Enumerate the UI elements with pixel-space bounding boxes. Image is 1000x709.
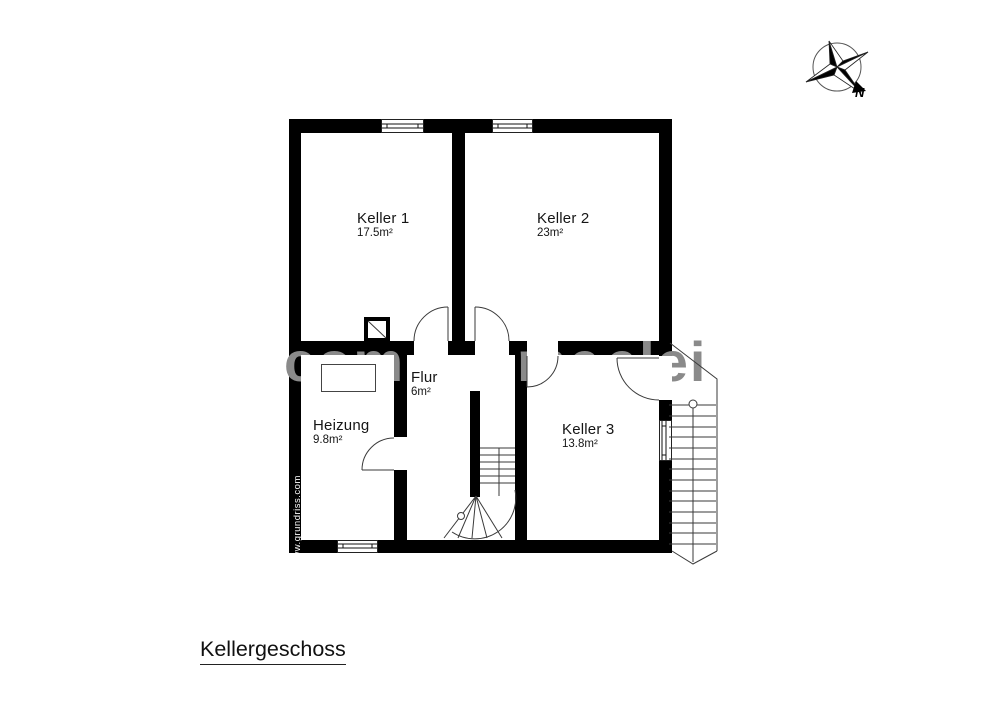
exterior-staircase xyxy=(669,343,717,564)
door-exterior xyxy=(617,358,659,400)
door-keller2-keller3 xyxy=(527,356,558,387)
room-label-flur: Flur xyxy=(411,369,438,386)
room-area-keller3: 13.8m² xyxy=(562,438,598,450)
door-heizung xyxy=(362,438,394,470)
stair-direction-arrow xyxy=(672,551,717,564)
door-keller2 xyxy=(475,307,509,341)
room-area-keller1: 17.5m² xyxy=(357,227,393,239)
room-area-keller2: 23m² xyxy=(537,227,563,239)
interior-staircase xyxy=(444,448,516,539)
room-label-keller1: Keller 1 xyxy=(357,210,409,227)
room-label-keller3: Keller 3 xyxy=(562,421,614,438)
plan-detail-layer xyxy=(0,0,1000,709)
room-area-heizung: 9.8m² xyxy=(313,434,342,446)
door-keller1 xyxy=(414,307,448,341)
room-label-heizung: Heizung xyxy=(313,417,369,434)
room-area-flur: 6m² xyxy=(411,386,431,398)
site-watermark: www.grundriss.com xyxy=(292,475,303,566)
chimney-diagonal xyxy=(368,321,386,338)
floorplan-page: com me elei xyxy=(0,0,1000,709)
room-label-keller2: Keller 2 xyxy=(537,210,589,227)
compass-north-label: N xyxy=(855,85,864,100)
floor-title: Kellergeschoss xyxy=(200,637,346,665)
window-glazing xyxy=(338,124,666,548)
